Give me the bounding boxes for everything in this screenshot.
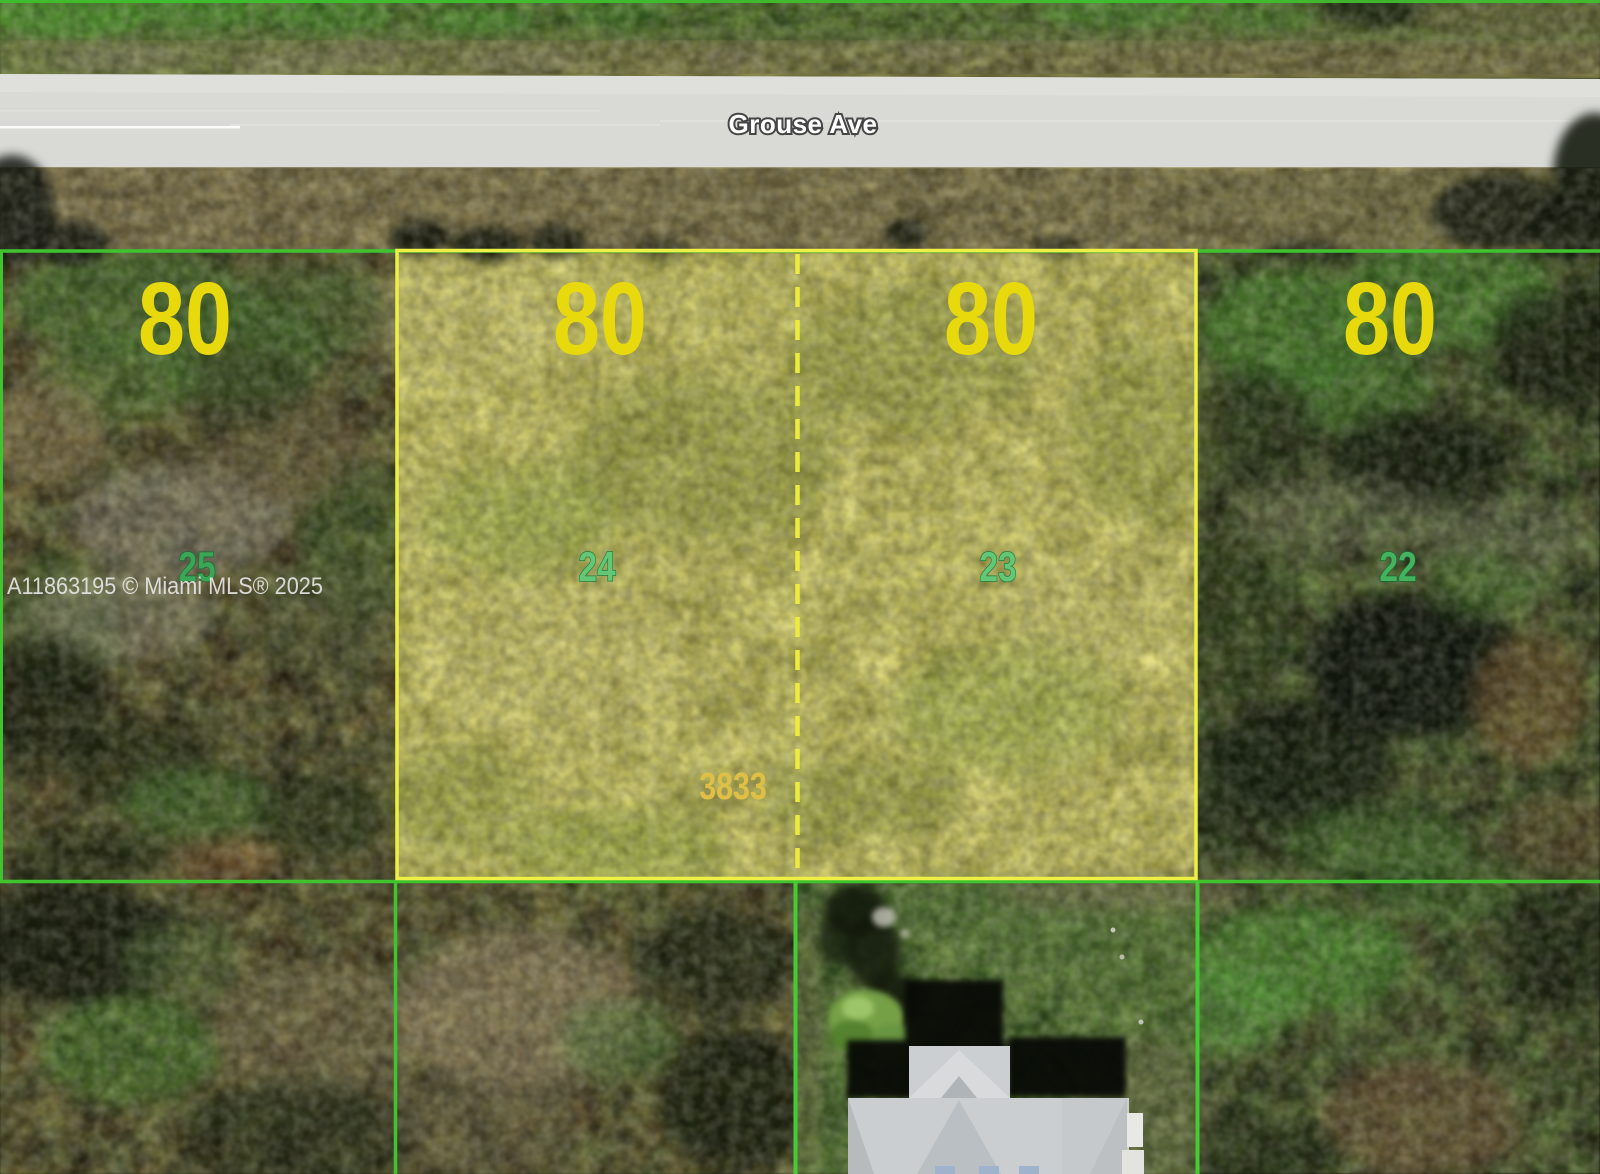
svg-text:80: 80	[138, 261, 232, 376]
svg-text:24: 24	[578, 545, 615, 591]
svg-text:80: 80	[944, 261, 1038, 376]
svg-text:22: 22	[1379, 545, 1416, 591]
svg-text:80: 80	[553, 261, 647, 376]
svg-text:23: 23	[979, 545, 1016, 591]
svg-text:80: 80	[1343, 261, 1437, 376]
svg-text:A11863195 © Miami MLS® 2025: A11863195 © Miami MLS® 2025	[7, 572, 323, 600]
svg-text:Grouse Ave: Grouse Ave	[728, 109, 877, 139]
svg-text:3833: 3833	[699, 766, 767, 808]
